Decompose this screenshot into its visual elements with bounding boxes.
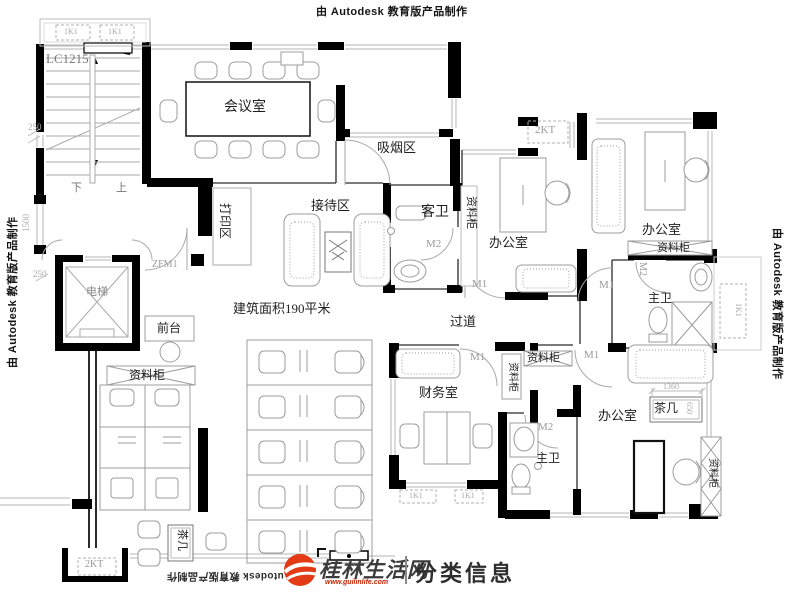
elevator (66, 267, 128, 337)
site-logo-icon (283, 551, 319, 589)
workstation-cluster (247, 340, 372, 563)
floor-plan-page: LC1215会议室吸烟区接待区打印区ZFM1客卫M2电梯2501500250下上… (0, 0, 790, 600)
site-tagline: 分类信息 (415, 556, 515, 588)
site-url: www.guilinlife.com (325, 579, 388, 586)
furniture (100, 52, 721, 566)
logo-divider (405, 556, 407, 584)
watermark-right: 由 Autodesk 教育版产品制作 (770, 228, 786, 379)
watermark-top: 由 Autodesk 教育版产品制作 (316, 3, 467, 19)
watermark-left: 由 Autodesk 教育版产品制作 (4, 217, 20, 368)
stairs (46, 43, 140, 183)
balcony-right (714, 257, 761, 350)
site-watermark: 桂林生活网 www.guilinlife.com 分类信息 (283, 548, 533, 594)
floor-plan-drawing (0, 0, 790, 600)
